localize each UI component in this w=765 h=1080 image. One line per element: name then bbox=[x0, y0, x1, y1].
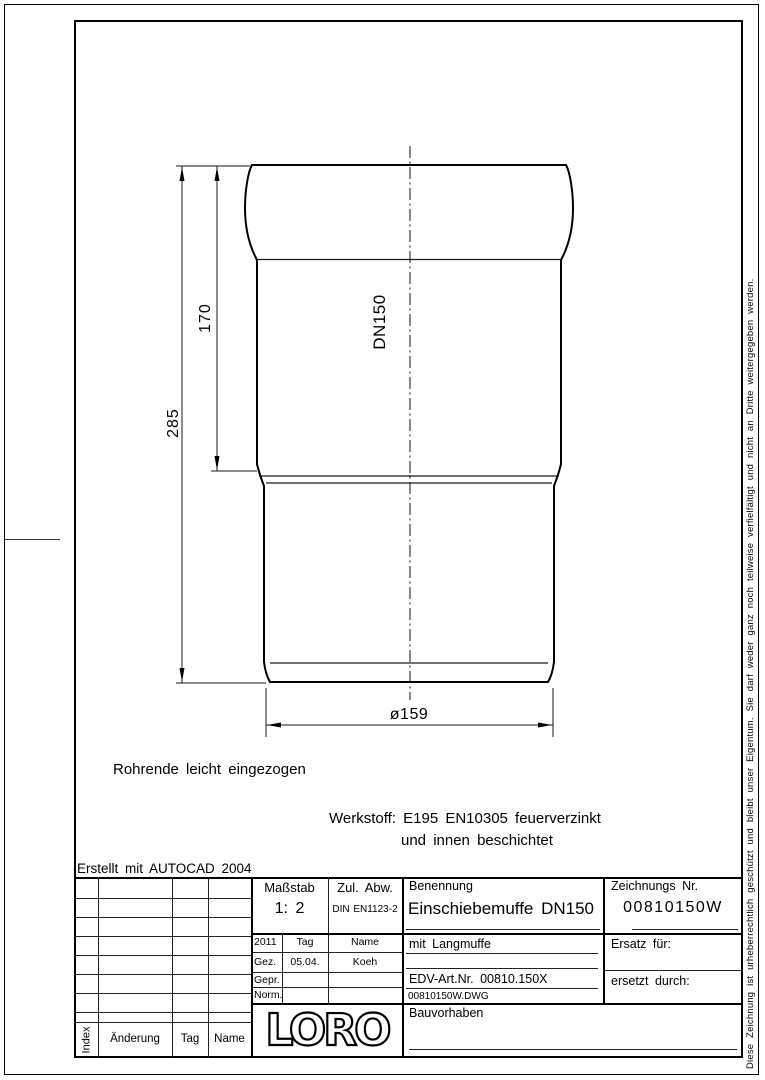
grid-line bbox=[603, 970, 743, 971]
underline bbox=[406, 968, 598, 969]
ersetzt-durch-label: ersetzt durch: bbox=[611, 974, 690, 988]
gepr-label: Gepr. bbox=[254, 974, 280, 986]
zeichnungs-nr-label: Zeichnungs Nr. bbox=[611, 879, 698, 893]
dim-label-diameter: ø159 bbox=[390, 706, 428, 723]
norm-label: Norm. bbox=[254, 989, 283, 1001]
bauvorhaben-label: Bauvorhaben bbox=[409, 1006, 483, 1020]
arrow-down-icon bbox=[180, 668, 185, 682]
zul-abw-value: DIN EN1123-2 bbox=[328, 904, 402, 915]
dim-label-170: 170 bbox=[197, 303, 214, 333]
arrow-left-icon bbox=[267, 723, 281, 728]
ersatz-fuer-label: Ersatz für: bbox=[611, 937, 671, 951]
zul-abw-label: Zul. Abw. bbox=[328, 880, 402, 895]
grid-line bbox=[208, 877, 209, 1058]
underline bbox=[406, 988, 598, 989]
grid-line bbox=[172, 877, 173, 1058]
underline bbox=[409, 1049, 737, 1050]
gez-label: Gez. bbox=[254, 956, 276, 968]
revision-index-header: Index bbox=[74, 1022, 98, 1058]
benennung-value: Einschiebemuffe DN150 bbox=[408, 899, 594, 919]
drawing-note: Rohrende leicht eingezogen bbox=[113, 761, 306, 778]
grid-line bbox=[74, 898, 251, 899]
grid-line bbox=[74, 993, 251, 994]
underline bbox=[406, 953, 598, 954]
edv-art-nr: EDV-Art.Nr. 00810.150X bbox=[409, 972, 548, 986]
arrow-right-icon bbox=[538, 723, 552, 728]
approval-name-header: Name bbox=[328, 936, 402, 948]
arrow-up-icon bbox=[180, 167, 185, 181]
grid-line bbox=[251, 933, 743, 935]
approval-tag-header: Tag bbox=[282, 936, 328, 948]
grid-line bbox=[74, 1012, 251, 1013]
masstab-value: 1: 2 bbox=[251, 900, 328, 918]
revision-tag-header: Tag bbox=[172, 1033, 208, 1045]
benennung-label: Benennung bbox=[409, 879, 473, 893]
grid-line bbox=[98, 877, 99, 1058]
created-with-note: Erstellt mit AUTOCAD 2004 bbox=[77, 861, 252, 876]
pipe-outline bbox=[245, 165, 573, 682]
benennung-subtitle: mit Langmuffe bbox=[409, 937, 491, 951]
grid-line bbox=[251, 952, 402, 953]
underline bbox=[406, 929, 600, 930]
dim-label-285: 285 bbox=[165, 408, 182, 438]
werkstoff-line1: Werkstoff: E195 EN10305 feuerverzinkt bbox=[329, 810, 601, 827]
grid-line bbox=[74, 936, 251, 937]
dimension-lines bbox=[176, 166, 553, 737]
loro-logo: LORO bbox=[258, 1006, 396, 1054]
arrow-down-icon bbox=[215, 456, 220, 470]
copyright-vertical-text: Diese Zeichnung ist urheberrechtlich ges… bbox=[745, 307, 756, 1069]
werkstoff-line2: und innen beschichtet bbox=[401, 832, 553, 849]
pipe-size-label: DN150 bbox=[370, 294, 389, 349]
arrow-up-icon bbox=[215, 167, 220, 181]
revision-name-header: Name bbox=[208, 1033, 251, 1045]
pipe-detail-lines bbox=[257, 260, 561, 664]
pipe-drawing: 285 170 DN150 ø159 bbox=[0, 0, 765, 870]
revision-index-label: Index bbox=[80, 1027, 92, 1054]
masstab-label: Maßstab bbox=[251, 880, 328, 895]
grid-line bbox=[402, 877, 404, 1058]
grid-line bbox=[74, 974, 251, 975]
grid-line bbox=[74, 1022, 251, 1023]
grid-line bbox=[603, 877, 605, 1003]
approval-year: 2011 bbox=[254, 936, 277, 948]
dwg-filename: 00810150W.DWG bbox=[408, 991, 489, 1002]
page: 285 170 DN150 ø159 Rohrende leicht einge… bbox=[0, 0, 765, 1080]
gez-tag: 05.04. bbox=[282, 956, 328, 968]
underline bbox=[632, 929, 738, 930]
grid-line bbox=[74, 955, 251, 956]
revision-aenderung-header: Änderung bbox=[98, 1033, 172, 1045]
grid-line bbox=[251, 987, 402, 988]
grid-line bbox=[74, 917, 251, 918]
gez-name: Koeh bbox=[328, 956, 402, 968]
zeichnungs-nr-value: 00810150W bbox=[603, 899, 743, 917]
grid-line bbox=[251, 972, 402, 973]
